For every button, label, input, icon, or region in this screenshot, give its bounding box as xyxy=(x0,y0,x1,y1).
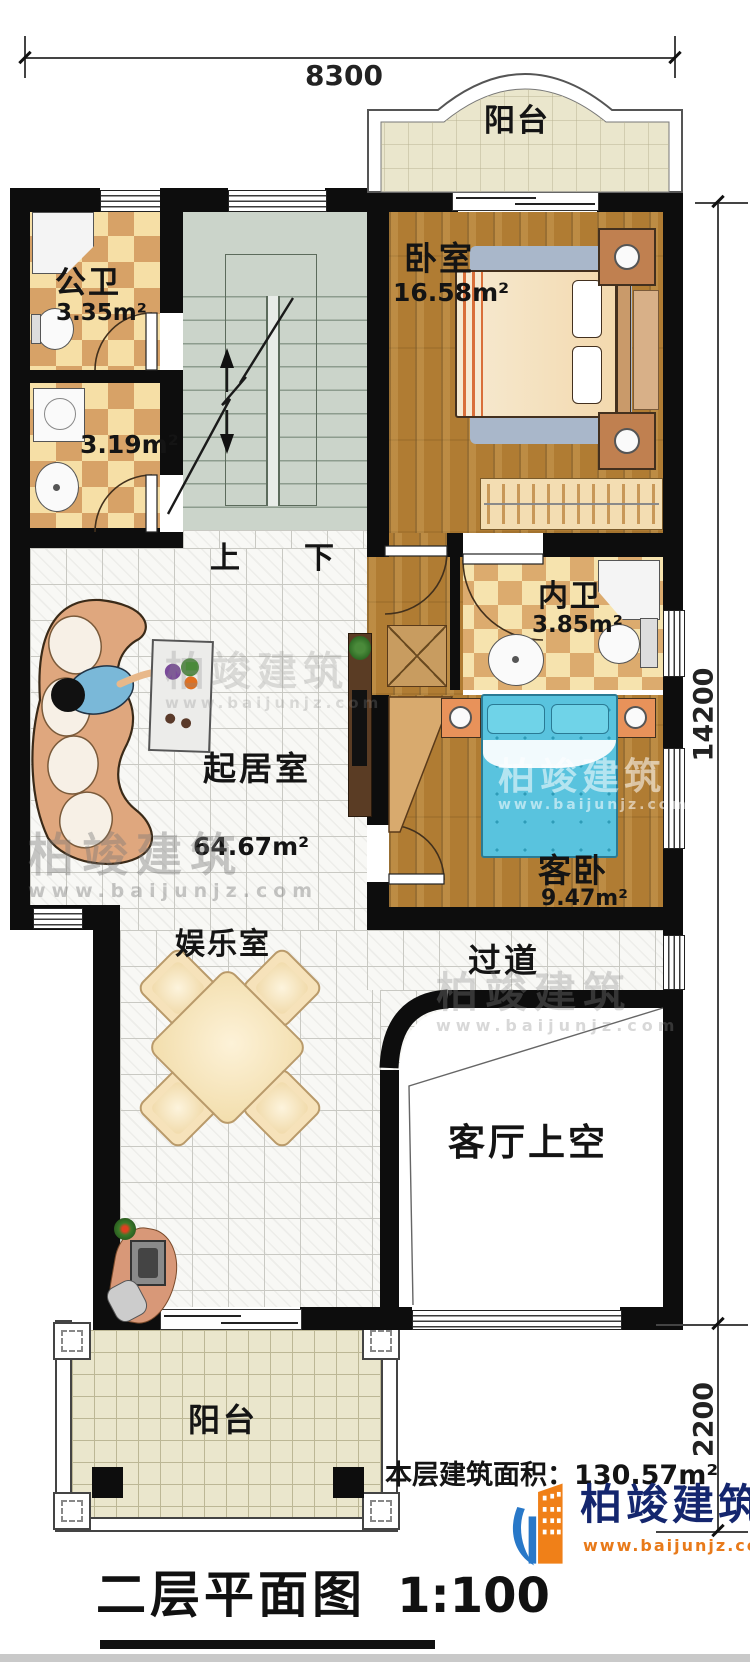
brand-name: 柏竣建筑 xyxy=(580,1484,750,1526)
window-void-bottom xyxy=(412,1310,622,1330)
label-public-bath-area: 3.35m² xyxy=(56,302,147,325)
wall-stairs-right xyxy=(367,188,389,557)
window-living-step xyxy=(33,908,83,929)
wall-guest-left-2 xyxy=(367,882,389,910)
brand-url: www.baijunjz.com xyxy=(583,1538,750,1554)
wall-bottom-3 xyxy=(620,1307,682,1330)
dim-right-ext-2 xyxy=(656,1324,748,1326)
dim-right-ext-1 xyxy=(695,202,748,204)
drawing-title-row: 二层平面图 1:100 xyxy=(96,1570,550,1620)
sink-inner-dot xyxy=(512,656,519,663)
wall-bedroom-bottom-2 xyxy=(543,533,663,557)
window-inner-bath-right xyxy=(663,610,685,677)
label-laundry-area: 3.19m² xyxy=(80,432,179,457)
title-underline xyxy=(100,1640,435,1649)
label-inner-bath: 内卫 xyxy=(538,582,602,612)
sliding-door-bedroom-balcony xyxy=(452,191,599,211)
desk-monitor xyxy=(130,1240,166,1286)
balcony-bottom-rail-bottom xyxy=(55,1517,398,1532)
wall-bath-right-1 xyxy=(160,188,183,313)
sliding-door-balcony-bottom xyxy=(160,1309,302,1330)
desk-plant xyxy=(114,1218,136,1240)
wall-void-left xyxy=(380,1070,399,1307)
label-guest-bedroom: 客卧 xyxy=(538,854,608,887)
stair-divider xyxy=(266,296,280,506)
label-living: 起居室 xyxy=(203,752,311,785)
watermark-living-center: 柏竣建筑 www.baijunjz.com xyxy=(165,652,382,711)
label-void: 客厅上空 xyxy=(448,1124,608,1161)
nightstand-2 xyxy=(598,412,656,470)
window-stairs-top xyxy=(228,190,327,212)
label-inner-bath-area: 3.85m² xyxy=(532,614,623,637)
label-stairs-down: 下 xyxy=(304,544,334,574)
toilet-inner-tank xyxy=(640,618,658,668)
wardrobe xyxy=(480,478,663,530)
bed-pillow-2 xyxy=(572,346,602,404)
bed-pillow-1 xyxy=(572,280,602,338)
label-entertainment: 娱乐室 xyxy=(175,930,271,960)
watermark-corridor: 柏竣建筑 www.baijunjz.com xyxy=(436,972,679,1034)
washing-machine-door xyxy=(44,398,76,430)
window-public-bath-top xyxy=(100,190,167,212)
wall-top-3 xyxy=(325,188,458,212)
brand-logo-icon xyxy=(506,1478,572,1570)
balcony-column-right xyxy=(333,1467,364,1498)
wall-bath-divider xyxy=(10,370,160,383)
wall-bedroom-bottom-1 xyxy=(447,533,463,557)
drawing-title: 二层平面图 xyxy=(96,1566,366,1624)
balcony-pillar-se xyxy=(362,1492,400,1530)
guest-nightstand-2 xyxy=(616,698,656,738)
wall-bath-bottom xyxy=(10,528,160,548)
nightstand-1 xyxy=(598,228,656,286)
watermark-guest-bed: 柏竣建筑 www.baijunjz.com xyxy=(498,758,689,812)
label-public-bath: 公卫 xyxy=(55,268,121,299)
dim-top-value: 8300 xyxy=(305,62,383,90)
wall-bottom-2 xyxy=(300,1307,412,1330)
wall-inner-bath-left xyxy=(450,557,460,690)
bed-headboard xyxy=(617,268,631,420)
label-balcony-top: 阳台 xyxy=(484,106,550,137)
floor-plan-canvas: 阳台 卧室 16.58m² 公卫 3.35m² 3.19m² 内卫 3.85m²… xyxy=(0,0,750,1662)
label-bedroom-area: 16.58m² xyxy=(393,280,509,305)
wall-bath-right-2 xyxy=(160,370,183,475)
page-bottom-strip xyxy=(0,1654,750,1662)
sink-faucet-dot xyxy=(53,484,60,491)
label-bedroom: 卧室 xyxy=(404,242,474,275)
bed-side-runner xyxy=(633,290,659,410)
toilet-tank xyxy=(31,314,41,344)
balcony-pillar-sw xyxy=(53,1492,91,1530)
dim-right-line xyxy=(717,203,719,1533)
label-stairs-up: 上 xyxy=(210,544,240,574)
wall-left xyxy=(10,188,30,930)
hall-cabinet xyxy=(387,625,447,687)
guest-nightstand-1 xyxy=(441,698,481,738)
balcony-pillar-nw xyxy=(53,1322,91,1360)
dim-right-main-value: 14200 xyxy=(691,655,718,775)
watermark-living-bottom: 柏竣建筑 www.baijunjz.com xyxy=(28,832,318,901)
balcony-column-left xyxy=(92,1467,123,1498)
brand-logo: 柏竣建筑 www.baijunjz.com xyxy=(506,1476,746,1572)
label-balcony-bottom: 阳台 xyxy=(188,1404,258,1436)
label-guest-bedroom-area: 9.47m² xyxy=(541,888,628,910)
wall-bath-right-3 xyxy=(160,532,183,548)
drawing-scale: 1:100 xyxy=(397,1568,550,1624)
